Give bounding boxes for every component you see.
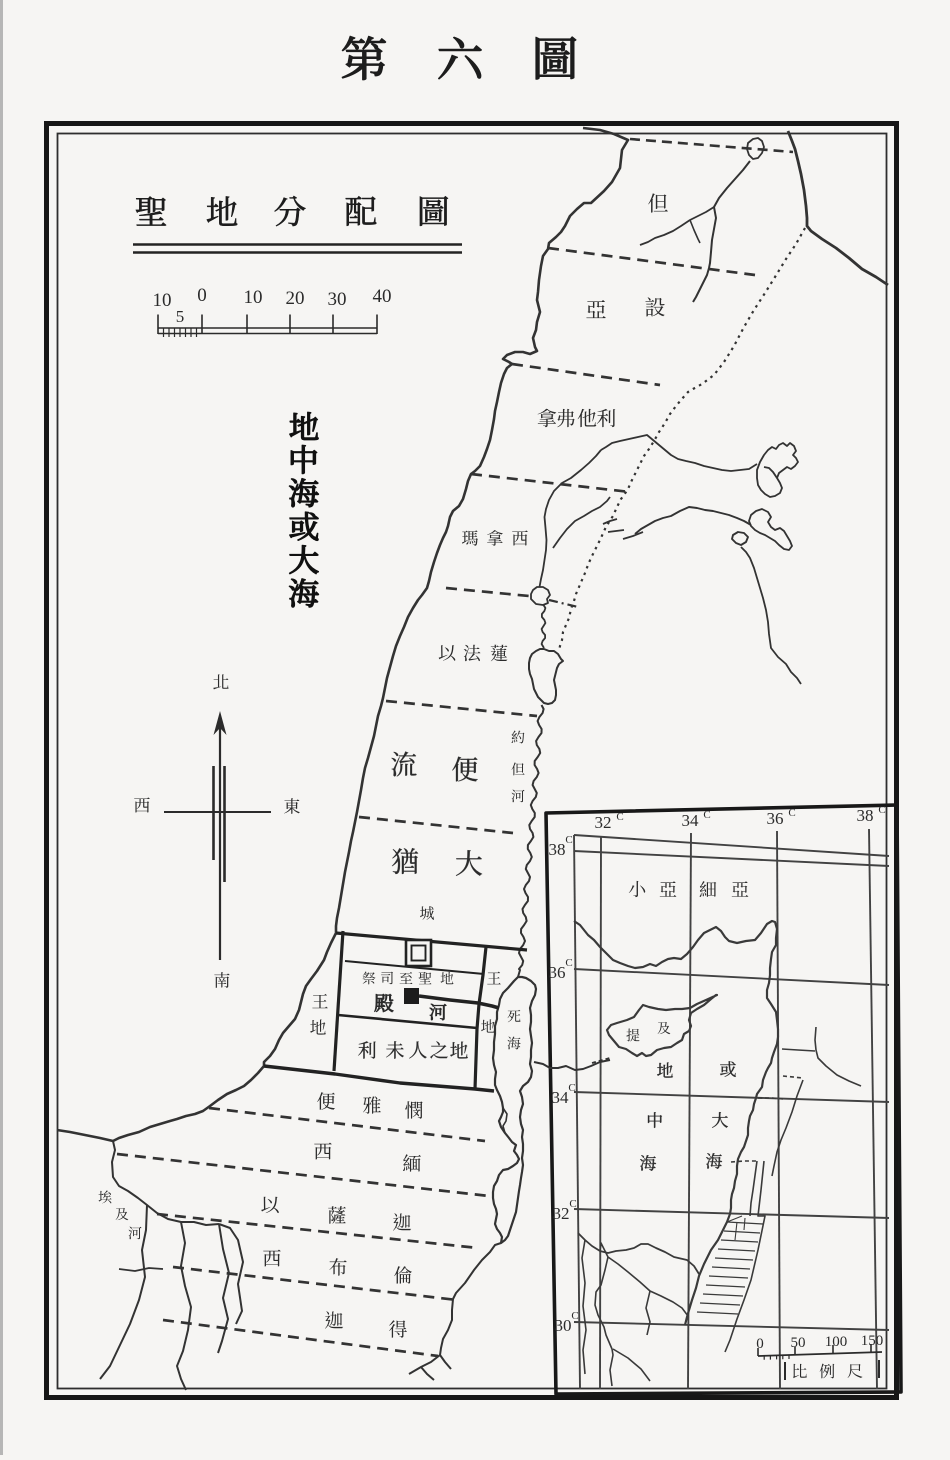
svg-text:30: 30	[555, 1316, 572, 1335]
svg-text:38: 38	[857, 806, 874, 825]
svg-text:150: 150	[861, 1333, 884, 1349]
svg-text:100: 100	[825, 1334, 848, 1350]
svg-text:C: C	[571, 1310, 578, 1322]
svg-text:C: C	[569, 1198, 576, 1210]
svg-text:34: 34	[552, 1088, 570, 1107]
svg-text:32: 32	[595, 813, 612, 832]
svg-text:30: 30	[328, 289, 347, 310]
svg-text:50: 50	[791, 1335, 806, 1351]
svg-text:C: C	[878, 804, 885, 816]
svg-text:C: C	[788, 807, 795, 819]
svg-text:20: 20	[286, 288, 305, 309]
svg-text:38: 38	[549, 840, 566, 859]
svg-text:C: C	[565, 957, 572, 969]
svg-text:40: 40	[373, 286, 392, 307]
svg-text:32: 32	[553, 1204, 570, 1223]
svg-text:C: C	[565, 834, 572, 846]
svg-text:10: 10	[244, 287, 263, 308]
svg-text:C: C	[616, 811, 623, 823]
svg-text:0: 0	[197, 285, 207, 306]
svg-text:34: 34	[682, 811, 700, 830]
svg-text:36: 36	[767, 809, 784, 828]
svg-text:C: C	[568, 1082, 575, 1094]
svg-text:36: 36	[549, 963, 566, 982]
svg-text:5: 5	[176, 307, 185, 326]
svg-text:C: C	[703, 809, 710, 821]
svg-text:10: 10	[153, 290, 172, 311]
